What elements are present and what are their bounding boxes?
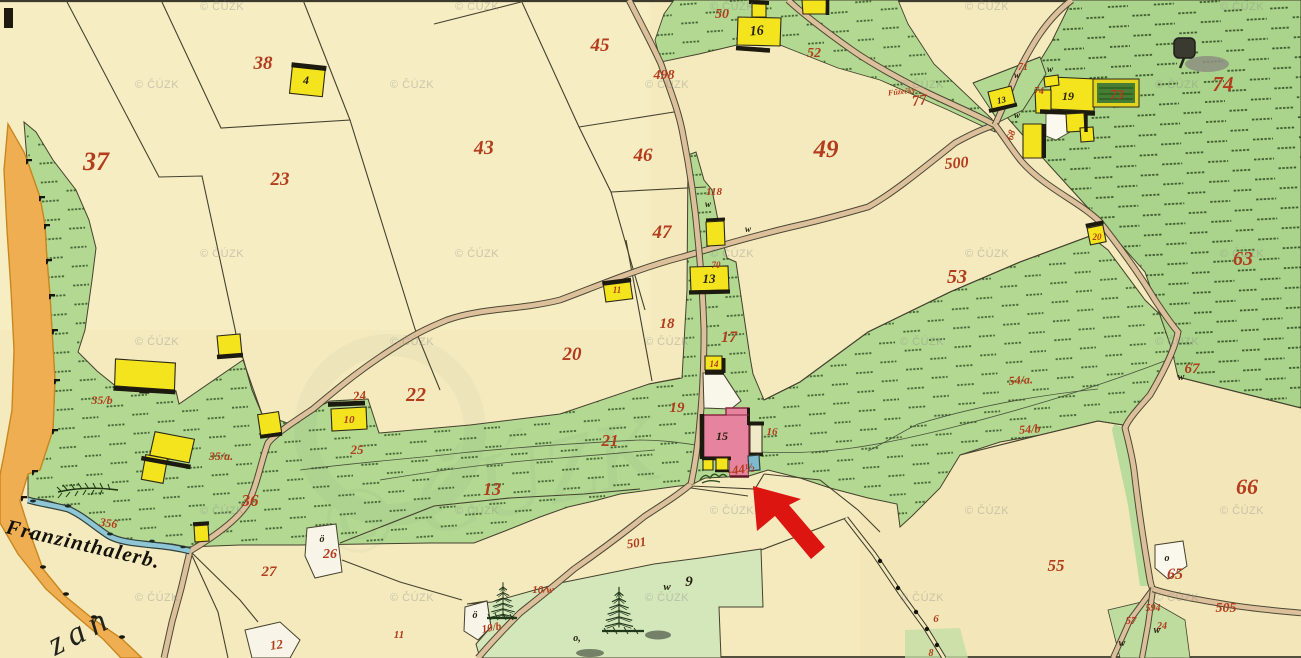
svg-text:© ČÚZK: © ČÚZK (135, 78, 179, 91)
svg-text:© ČÚZK: © ČÚZK (390, 591, 434, 604)
svg-text:20: 20 (1092, 232, 1103, 242)
svg-text:505: 505 (1216, 601, 1237, 616)
svg-text:w: w (1154, 625, 1161, 636)
svg-text:18: 18 (660, 316, 676, 332)
svg-text:17: 17 (721, 329, 738, 346)
svg-text:© ČÚZK: © ČÚZK (1220, 247, 1264, 260)
svg-text:356: 356 (98, 515, 119, 532)
svg-text:16: 16 (767, 426, 779, 438)
svg-text:25: 25 (350, 442, 365, 457)
svg-text:20: 20 (562, 344, 583, 365)
svg-text:© ČÚZK: © ČÚZK (1220, 504, 1264, 517)
svg-text:55: 55 (1048, 556, 1066, 575)
svg-text:54/b: 54/b (1019, 421, 1041, 436)
svg-text:70: 70 (712, 260, 722, 270)
svg-text:© ČÚZK: © ČÚZK (200, 0, 244, 13)
svg-text:© ČÚZK: © ČÚZK (1155, 335, 1199, 348)
svg-text:10/w: 10/w (532, 584, 554, 596)
svg-text:12: 12 (269, 636, 284, 653)
svg-text:23: 23 (270, 169, 290, 190)
svg-text:19: 19 (670, 400, 686, 416)
svg-text:© ČÚZK: © ČÚZK (645, 78, 689, 91)
svg-text:© ČÚZK: © ČÚZK (710, 504, 754, 517)
svg-text:16: 16 (749, 24, 764, 40)
svg-text:501: 501 (626, 534, 647, 552)
svg-text:27: 27 (261, 564, 278, 580)
svg-text:65: 65 (1167, 566, 1183, 583)
svg-text:© ČÚZK: © ČÚZK (965, 0, 1009, 13)
svg-text:118: 118 (706, 186, 722, 198)
svg-text:o,: o, (573, 633, 581, 644)
svg-text:67: 67 (1185, 361, 1201, 377)
svg-text:49: 49 (813, 136, 840, 163)
svg-text:24: 24 (351, 387, 367, 403)
svg-text:73: 73 (1110, 88, 1124, 103)
svg-text:© ČÚZK: © ČÚZK (900, 78, 944, 91)
svg-text:ö: ö (320, 534, 325, 545)
svg-text:© ČÚZK: © ČÚZK (710, 247, 754, 260)
svg-text:© ČÚZK: © ČÚZK (965, 247, 1009, 260)
svg-text:o: o (1165, 553, 1170, 564)
svg-text:66: 66 (1236, 474, 1258, 499)
svg-text:© ČÚZK: © ČÚZK (455, 247, 499, 260)
svg-text:9: 9 (685, 574, 693, 590)
svg-text:© ČÚZK: © ČÚZK (455, 504, 499, 517)
svg-text:© ČÚZK: © ČÚZK (645, 335, 689, 348)
svg-text:w: w (745, 224, 752, 234)
svg-text:26: 26 (322, 547, 337, 562)
svg-text:© ČÚZK: © ČÚZK (1220, 0, 1264, 13)
svg-text:© ČÚZK: © ČÚZK (645, 591, 689, 604)
svg-text:11: 11 (394, 629, 404, 641)
svg-text:57: 57 (1126, 615, 1138, 627)
svg-text:8: 8 (929, 648, 934, 658)
svg-text:19: 19 (1062, 89, 1074, 103)
svg-text:13: 13 (483, 479, 501, 499)
svg-text:© ČÚZK: © ČÚZK (135, 591, 179, 604)
svg-text:47: 47 (652, 222, 674, 243)
svg-text:© ČÚZK: © ČÚZK (1155, 78, 1199, 91)
svg-text:© ČÚZK: © ČÚZK (390, 335, 434, 348)
svg-text:45: 45 (590, 35, 611, 56)
svg-text:53: 53 (947, 266, 967, 288)
svg-text:74: 74 (1034, 86, 1044, 97)
svg-text:21: 21 (601, 431, 619, 450)
svg-text:54/a.: 54/a. (1008, 372, 1033, 388)
svg-text:15: 15 (716, 429, 728, 443)
svg-text:14: 14 (710, 359, 720, 369)
svg-text:74: 74 (1213, 72, 1234, 96)
svg-text:13: 13 (703, 271, 717, 286)
svg-text:ö: ö (473, 610, 478, 621)
svg-text:w: w (1047, 64, 1054, 74)
svg-text:594: 594 (1146, 603, 1161, 614)
svg-text:4: 4 (302, 73, 309, 87)
svg-text:© ČÚZK: © ČÚZK (135, 335, 179, 348)
svg-text:10: 10 (344, 414, 356, 426)
svg-text:37: 37 (82, 147, 110, 176)
svg-text:w: w (1014, 70, 1021, 80)
svg-text:© ČÚZK: © ČÚZK (965, 504, 1009, 517)
svg-text:© ČÚZK: © ČÚZK (1155, 591, 1199, 604)
svg-text:500: 500 (944, 154, 969, 173)
svg-text:w: w (705, 199, 712, 209)
svg-text:38: 38 (253, 53, 274, 74)
svg-text:43: 43 (472, 137, 494, 160)
svg-text:11: 11 (613, 285, 622, 295)
svg-text:© ČÚZK: © ČÚZK (455, 0, 499, 13)
svg-text:6: 6 (933, 613, 939, 625)
svg-text:© ČÚZK: © ČÚZK (900, 591, 944, 604)
svg-text:© ČÚZK: © ČÚZK (390, 78, 434, 91)
svg-text:w: w (1119, 638, 1126, 649)
svg-text:35/b: 35/b (90, 393, 112, 407)
svg-text:© ČÚZK: © ČÚZK (710, 0, 754, 13)
svg-text:w: w (1014, 110, 1021, 120)
svg-text:35/a.: 35/a. (208, 449, 233, 463)
svg-text:© ČÚZK: © ČÚZK (200, 247, 244, 260)
svg-text:© ČÚZK: © ČÚZK (900, 335, 944, 348)
svg-text:22: 22 (405, 384, 426, 406)
svg-text:52: 52 (807, 46, 821, 61)
svg-text:© ČÚZK: © ČÚZK (200, 504, 244, 517)
svg-text:46: 46 (633, 145, 654, 166)
svg-text:w: w (1178, 372, 1185, 383)
